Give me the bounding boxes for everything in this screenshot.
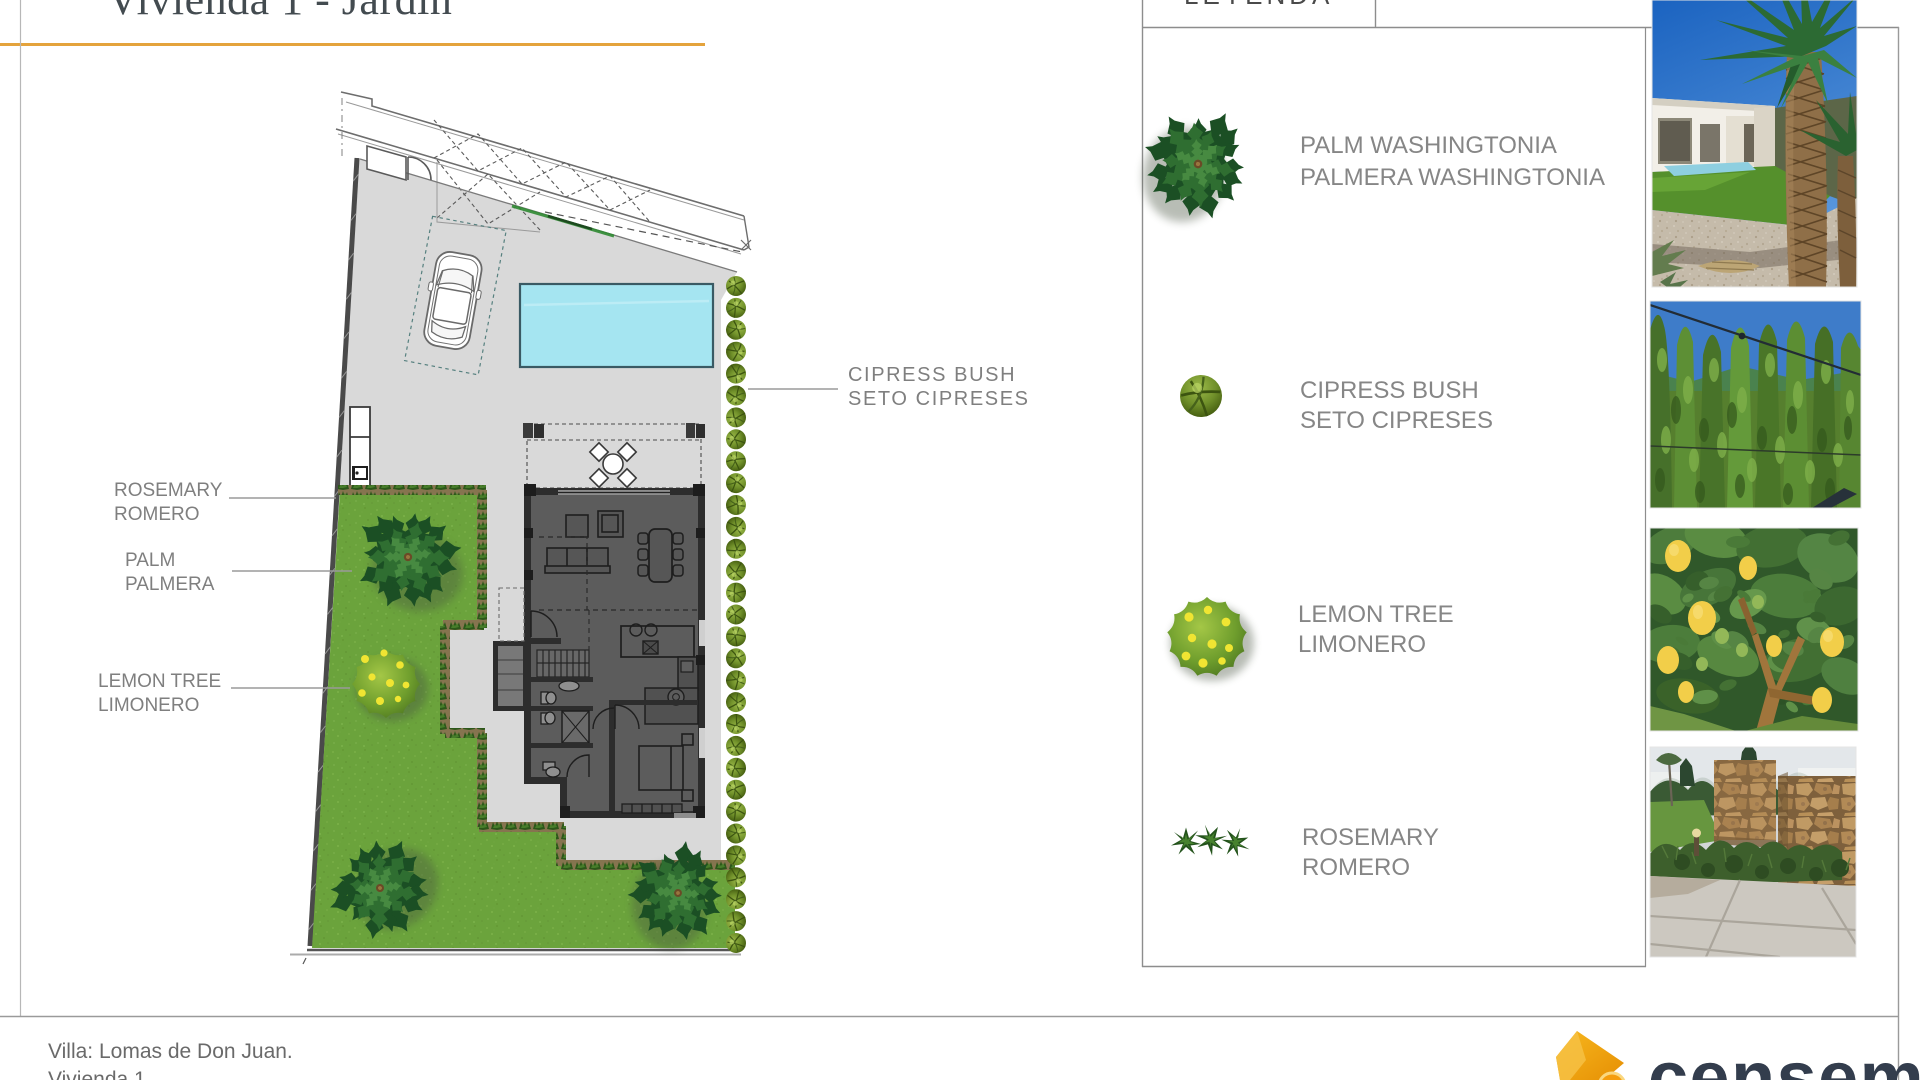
- svg-text:censem: censem: [1648, 1038, 1920, 1080]
- svg-text:ROMERO: ROMERO: [114, 504, 200, 525]
- svg-text:PALMERA: PALMERA: [125, 574, 215, 595]
- svg-text:PALM WASHINGTONIA: PALM WASHINGTONIA: [1300, 132, 1557, 159]
- svg-text:LIMONERO: LIMONERO: [98, 695, 199, 716]
- svg-text:Vivienda 1 - Jardín: Vivienda 1 - Jardín: [107, 0, 452, 24]
- svg-text:CIPRESS BUSH: CIPRESS BUSH: [1300, 377, 1479, 404]
- svg-text:ROSEMARY: ROSEMARY: [1302, 824, 1439, 851]
- svg-text:LEMON TREE: LEMON TREE: [1298, 601, 1454, 628]
- svg-text:PALM: PALM: [125, 550, 175, 571]
- svg-text:PALMERA WASHINGTONIA: PALMERA WASHINGTONIA: [1300, 164, 1605, 191]
- svg-text:LIMONERO: LIMONERO: [1298, 631, 1426, 658]
- svg-text:CIPRESS BUSH: CIPRESS BUSH: [848, 364, 1016, 386]
- svg-text:SETO CIPRESES: SETO CIPRESES: [1300, 407, 1493, 434]
- svg-text:ROMERO: ROMERO: [1302, 854, 1410, 881]
- svg-text:Villa: Lomas de Don Juan.: Villa: Lomas de Don Juan.: [48, 1040, 293, 1063]
- svg-text:ROSEMARY: ROSEMARY: [114, 480, 223, 501]
- svg-text:Vivienda 1: Vivienda 1: [48, 1068, 146, 1080]
- svg-text:SETO CIPRESES: SETO CIPRESES: [848, 388, 1030, 410]
- svg-text:LEMON TREE: LEMON TREE: [98, 671, 221, 692]
- svg-text:LEYENDA: LEYENDA: [1184, 0, 1333, 10]
